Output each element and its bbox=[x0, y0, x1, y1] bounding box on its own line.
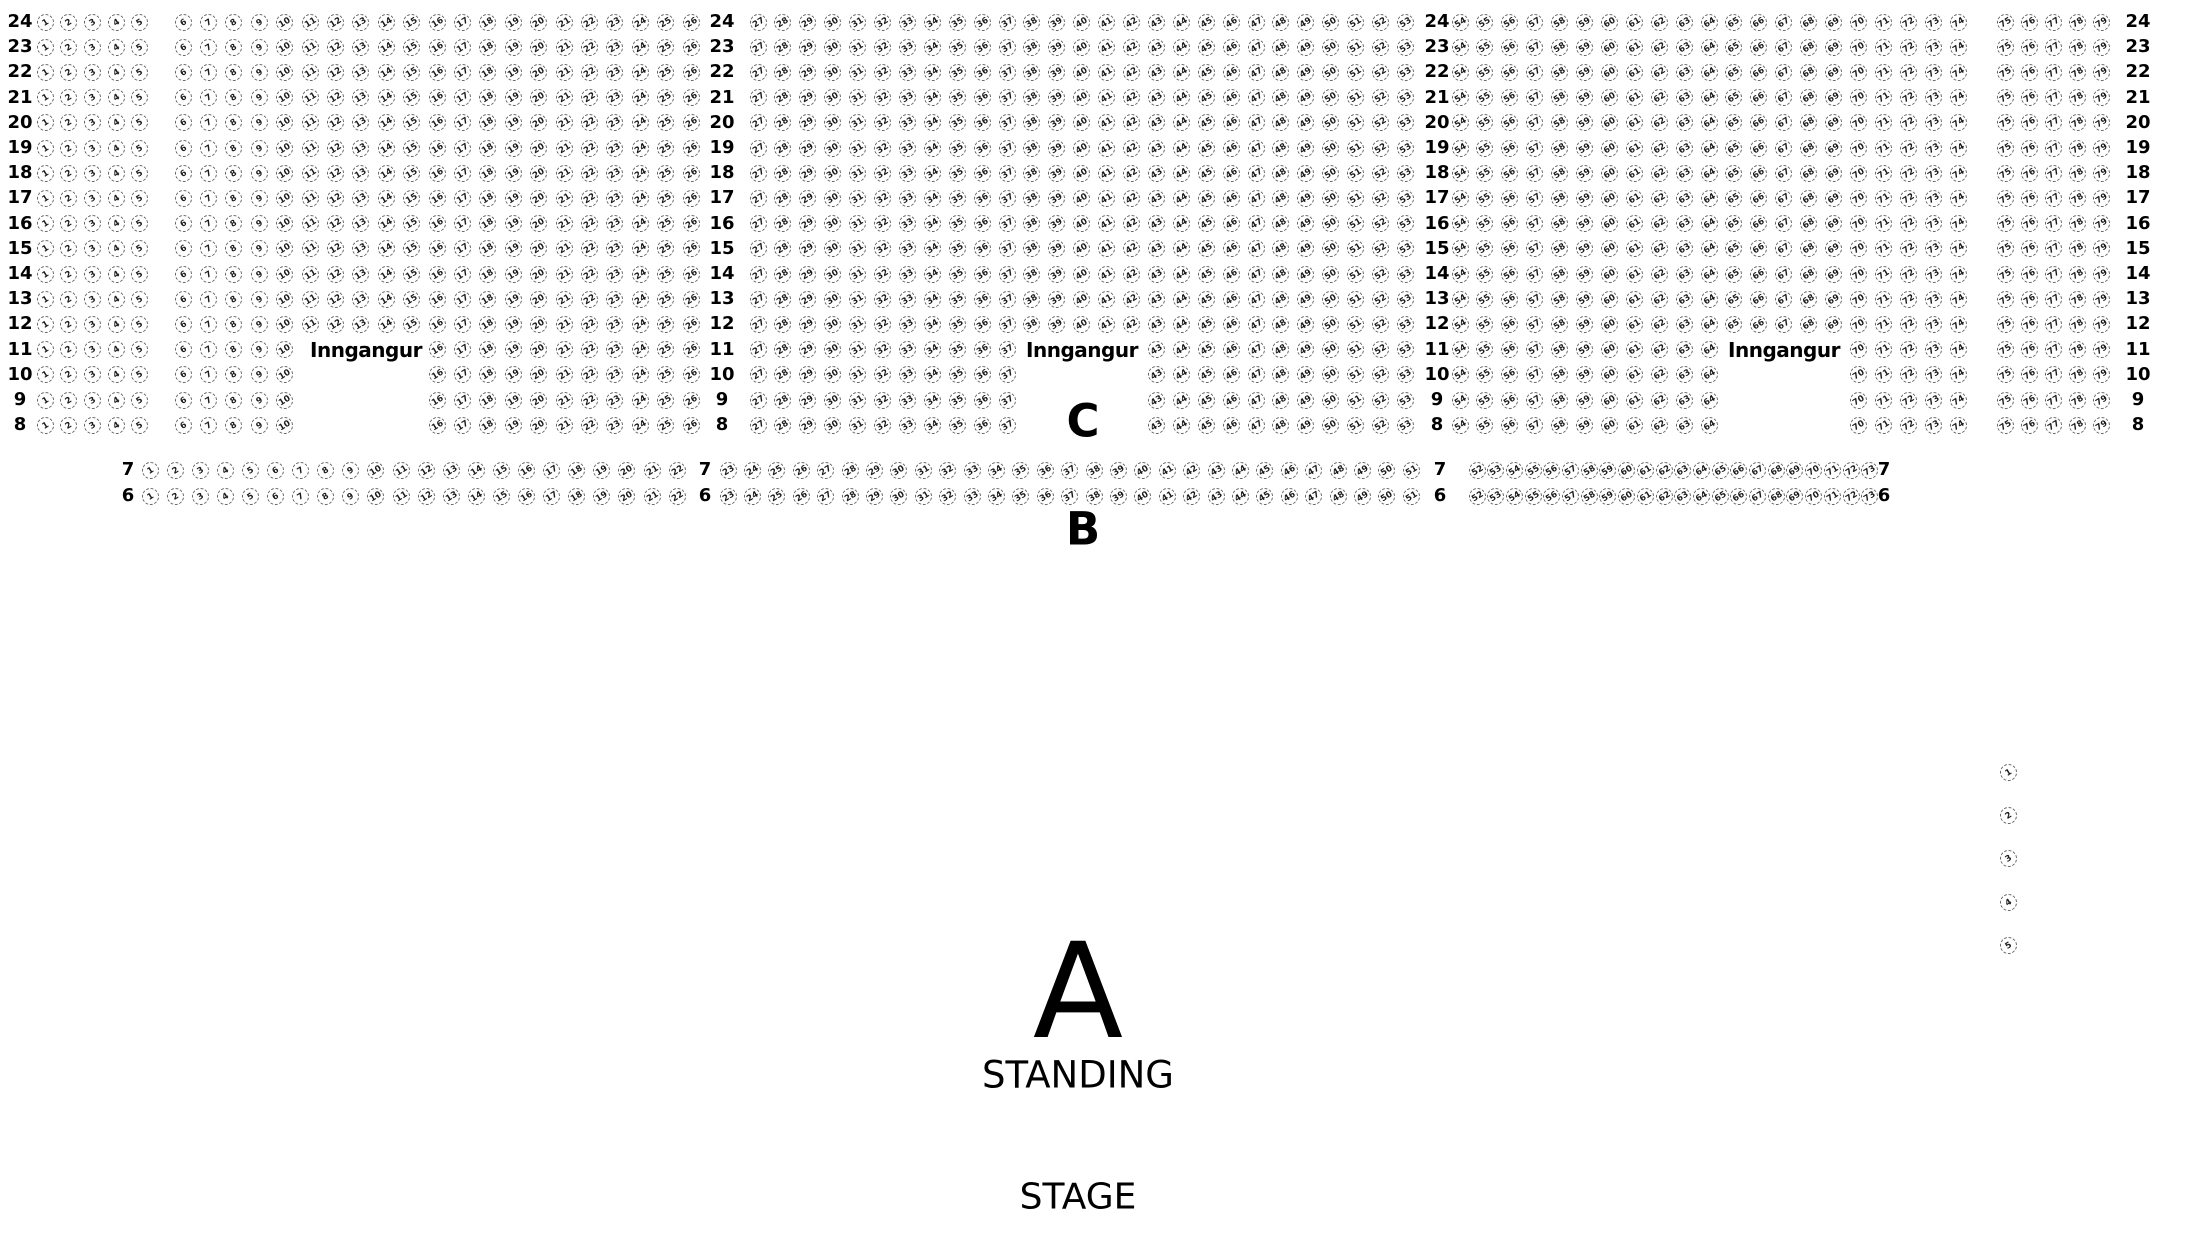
seat[interactable]: 51 bbox=[1344, 111, 1367, 134]
seat[interactable]: 4 bbox=[104, 237, 127, 260]
seat[interactable]: 8 bbox=[222, 10, 245, 33]
seat[interactable]: 47 bbox=[1244, 187, 1267, 210]
seat[interactable]: 34 bbox=[985, 484, 1008, 507]
seat[interactable]: 25 bbox=[654, 262, 677, 285]
seat[interactable]: 75 bbox=[1993, 10, 2016, 33]
seat[interactable]: 20 bbox=[527, 187, 550, 210]
seat[interactable]: 36 bbox=[970, 10, 993, 33]
seat[interactable]: 57 bbox=[1523, 161, 1546, 184]
seat[interactable]: 16 bbox=[425, 262, 448, 285]
seat[interactable]: 2 bbox=[57, 237, 80, 260]
seat[interactable]: 28 bbox=[838, 484, 861, 507]
seat[interactable]: 31 bbox=[846, 313, 869, 336]
seat[interactable]: 71 bbox=[1872, 187, 1895, 210]
seat[interactable]: 64 bbox=[1697, 187, 1720, 210]
seat[interactable]: 59 bbox=[1573, 388, 1596, 411]
seat[interactable]: 18 bbox=[476, 388, 499, 411]
seat[interactable]: 48 bbox=[1269, 262, 1292, 285]
seat[interactable]: 25 bbox=[654, 136, 677, 159]
seat[interactable]: 66 bbox=[1727, 484, 1750, 507]
seat[interactable]: 51 bbox=[1344, 262, 1367, 285]
seat[interactable]: 28 bbox=[771, 338, 794, 361]
seat[interactable]: 71 bbox=[1872, 35, 1895, 58]
seat[interactable]: 47 bbox=[1244, 161, 1267, 184]
seat[interactable]: 43 bbox=[1145, 313, 1168, 336]
seat[interactable]: 33 bbox=[896, 161, 919, 184]
seat[interactable]: 55 bbox=[1473, 413, 1496, 436]
seat[interactable]: 21 bbox=[552, 35, 575, 58]
seat[interactable]: 62 bbox=[1647, 287, 1670, 310]
seat[interactable]: 9 bbox=[247, 10, 270, 33]
seat[interactable]: 45 bbox=[1194, 363, 1217, 386]
seat[interactable]: 75 bbox=[1993, 61, 2016, 84]
seat[interactable]: 52 bbox=[1369, 212, 1392, 235]
seat[interactable]: 70 bbox=[1847, 313, 1870, 336]
seat[interactable]: 49 bbox=[1294, 212, 1317, 235]
seat[interactable]: 5 bbox=[128, 287, 151, 310]
seat[interactable]: 45 bbox=[1194, 262, 1217, 285]
seat[interactable]: 60 bbox=[1598, 287, 1621, 310]
seat[interactable]: 25 bbox=[654, 237, 677, 260]
seat[interactable]: 63 bbox=[1672, 413, 1695, 436]
seat[interactable]: 37 bbox=[995, 363, 1018, 386]
seat[interactable]: 28 bbox=[771, 363, 794, 386]
seat[interactable]: 77 bbox=[2041, 61, 2064, 84]
seat[interactable]: 61 bbox=[1623, 313, 1646, 336]
seat[interactable]: 59 bbox=[1573, 61, 1596, 84]
seat[interactable]: 28 bbox=[771, 237, 794, 260]
seat[interactable]: 17 bbox=[451, 10, 474, 33]
seat[interactable]: 72 bbox=[1896, 237, 1919, 260]
seat[interactable]: 77 bbox=[2041, 237, 2064, 260]
seat[interactable]: 43 bbox=[1204, 484, 1227, 507]
seat[interactable]: 77 bbox=[2041, 262, 2064, 285]
seat[interactable]: 32 bbox=[871, 338, 894, 361]
seat[interactable]: 78 bbox=[2065, 136, 2088, 159]
seat[interactable]: 4 bbox=[104, 187, 127, 210]
seat[interactable]: 32 bbox=[871, 363, 894, 386]
seat[interactable]: 44 bbox=[1170, 61, 1193, 84]
seat[interactable]: 52 bbox=[1369, 161, 1392, 184]
seat[interactable]: 59 bbox=[1573, 262, 1596, 285]
seat[interactable]: 12 bbox=[324, 10, 347, 33]
seat[interactable]: 12 bbox=[324, 287, 347, 310]
seat[interactable]: 32 bbox=[936, 484, 959, 507]
seat[interactable]: 11 bbox=[389, 484, 412, 507]
seat[interactable]: 37 bbox=[995, 287, 1018, 310]
seat[interactable]: 28 bbox=[771, 287, 794, 310]
seat[interactable]: 4 bbox=[104, 363, 127, 386]
seat[interactable]: 74 bbox=[1946, 338, 1969, 361]
seat[interactable]: 64 bbox=[1697, 287, 1720, 310]
seat[interactable]: 47 bbox=[1244, 10, 1267, 33]
seat[interactable]: 46 bbox=[1219, 161, 1242, 184]
seat[interactable]: 18 bbox=[476, 111, 499, 134]
seat[interactable]: 53 bbox=[1394, 262, 1417, 285]
seat[interactable]: 53 bbox=[1394, 287, 1417, 310]
seat[interactable]: 15 bbox=[490, 484, 513, 507]
seat[interactable]: 40 bbox=[1070, 237, 1093, 260]
seat[interactable]: 14 bbox=[374, 313, 397, 336]
seat[interactable]: 51 bbox=[1344, 338, 1367, 361]
seat[interactable]: 32 bbox=[871, 212, 894, 235]
seat[interactable]: 55 bbox=[1473, 262, 1496, 285]
seat[interactable]: 69 bbox=[1822, 61, 1845, 84]
seat[interactable]: 71 bbox=[1872, 136, 1895, 159]
seat[interactable]: 34 bbox=[921, 262, 944, 285]
seat[interactable]: 27 bbox=[746, 161, 769, 184]
seat[interactable]: 38 bbox=[1020, 35, 1043, 58]
seat[interactable]: 34 bbox=[921, 136, 944, 159]
seat[interactable]: 39 bbox=[1045, 187, 1068, 210]
seat[interactable]: 43 bbox=[1145, 35, 1168, 58]
seat[interactable]: 65 bbox=[1722, 86, 1745, 109]
seat[interactable]: 33 bbox=[896, 86, 919, 109]
seat[interactable]: 37 bbox=[995, 413, 1018, 436]
seat[interactable]: 50 bbox=[1319, 61, 1342, 84]
seat[interactable]: 49 bbox=[1294, 10, 1317, 33]
seat[interactable]: 57 bbox=[1523, 212, 1546, 235]
seat[interactable]: 5 bbox=[128, 61, 151, 84]
seat[interactable]: 47 bbox=[1244, 388, 1267, 411]
seat[interactable]: 12 bbox=[324, 212, 347, 235]
seat[interactable]: 36 bbox=[970, 35, 993, 58]
seat[interactable]: 67 bbox=[1772, 86, 1795, 109]
seat[interactable]: 46 bbox=[1219, 35, 1242, 58]
seat[interactable]: 12 bbox=[324, 136, 347, 159]
seat[interactable]: 31 bbox=[846, 161, 869, 184]
seat[interactable]: 21 bbox=[552, 262, 575, 285]
seat[interactable]: 14 bbox=[374, 287, 397, 310]
seat[interactable]: 71 bbox=[1872, 161, 1895, 184]
seat[interactable]: 34 bbox=[921, 338, 944, 361]
seat[interactable]: 17 bbox=[451, 413, 474, 436]
seat[interactable]: 52 bbox=[1465, 458, 1488, 481]
seat[interactable]: 41 bbox=[1095, 136, 1118, 159]
seat[interactable]: 23 bbox=[603, 161, 626, 184]
seat[interactable]: 21 bbox=[552, 413, 575, 436]
seat[interactable]: 43 bbox=[1145, 111, 1168, 134]
seat[interactable]: 52 bbox=[1369, 363, 1392, 386]
seat[interactable]: 46 bbox=[1277, 484, 1300, 507]
seat[interactable]: 49 bbox=[1294, 262, 1317, 285]
seat[interactable]: 5 bbox=[128, 161, 151, 184]
seat[interactable]: 40 bbox=[1070, 111, 1093, 134]
seat[interactable]: 52 bbox=[1369, 338, 1392, 361]
seat[interactable]: 5 bbox=[128, 363, 151, 386]
seat[interactable]: 46 bbox=[1219, 287, 1242, 310]
seat[interactable]: 26 bbox=[679, 35, 702, 58]
seat[interactable]: 8 bbox=[222, 413, 245, 436]
seat[interactable]: 31 bbox=[846, 187, 869, 210]
seat[interactable]: 46 bbox=[1219, 10, 1242, 33]
seat[interactable]: 33 bbox=[896, 237, 919, 260]
seat[interactable]: 9 bbox=[247, 413, 270, 436]
seat[interactable]: 57 bbox=[1523, 61, 1546, 84]
seat[interactable]: 17 bbox=[451, 338, 474, 361]
seat[interactable]: 8 bbox=[222, 262, 245, 285]
seat[interactable]: 76 bbox=[2017, 111, 2040, 134]
seat[interactable]: 62 bbox=[1647, 262, 1670, 285]
seat[interactable]: 3 bbox=[81, 237, 104, 260]
seat[interactable]: 6 bbox=[171, 388, 194, 411]
seat[interactable]: 72 bbox=[1896, 262, 1919, 285]
seat[interactable]: 34 bbox=[921, 212, 944, 235]
seat[interactable]: 39 bbox=[1045, 35, 1068, 58]
seat[interactable]: 54 bbox=[1503, 484, 1526, 507]
seat[interactable]: 10 bbox=[273, 413, 296, 436]
seat[interactable]: 60 bbox=[1598, 86, 1621, 109]
seat[interactable]: 44 bbox=[1170, 187, 1193, 210]
seat[interactable]: 71 bbox=[1872, 212, 1895, 235]
seat[interactable]: 36 bbox=[970, 413, 993, 436]
seat[interactable]: 70 bbox=[1847, 35, 1870, 58]
seat[interactable]: 32 bbox=[871, 287, 894, 310]
seat[interactable]: 79 bbox=[2089, 161, 2112, 184]
seat[interactable]: 60 bbox=[1598, 388, 1621, 411]
seat[interactable]: 24 bbox=[628, 212, 651, 235]
seat[interactable]: 67 bbox=[1772, 212, 1795, 235]
seat[interactable]: 58 bbox=[1548, 287, 1571, 310]
seat[interactable]: 41 bbox=[1095, 262, 1118, 285]
seat[interactable]: 17 bbox=[451, 363, 474, 386]
seat[interactable]: 22 bbox=[578, 388, 601, 411]
seat[interactable]: 25 bbox=[654, 338, 677, 361]
seat[interactable]: 56 bbox=[1498, 161, 1521, 184]
seat[interactable]: 74 bbox=[1946, 413, 1969, 436]
seat[interactable]: 4 bbox=[104, 161, 127, 184]
seat[interactable]: 21 bbox=[552, 313, 575, 336]
seat[interactable]: 36 bbox=[970, 388, 993, 411]
seat[interactable]: 58 bbox=[1548, 86, 1571, 109]
seat[interactable]: 15 bbox=[400, 187, 423, 210]
seat[interactable]: 30 bbox=[821, 187, 844, 210]
seat[interactable]: 66 bbox=[1727, 458, 1750, 481]
seat[interactable]: 13 bbox=[349, 35, 372, 58]
seat[interactable]: 9 bbox=[247, 111, 270, 134]
seat[interactable]: 7 bbox=[197, 111, 220, 134]
seat[interactable]: 3 bbox=[81, 35, 104, 58]
seat[interactable]: 18 bbox=[565, 458, 588, 481]
seat[interactable]: 52 bbox=[1369, 136, 1392, 159]
seat[interactable]: 50 bbox=[1375, 484, 1398, 507]
seat[interactable]: 4 bbox=[1996, 890, 2019, 913]
seat[interactable]: 69 bbox=[1822, 111, 1845, 134]
seat[interactable]: 77 bbox=[2041, 363, 2064, 386]
seat[interactable]: 50 bbox=[1319, 338, 1342, 361]
seat[interactable]: 48 bbox=[1269, 413, 1292, 436]
seat[interactable]: 73 bbox=[1921, 35, 1944, 58]
seat[interactable]: 29 bbox=[796, 111, 819, 134]
seat[interactable]: 47 bbox=[1244, 136, 1267, 159]
seat[interactable]: 56 bbox=[1498, 10, 1521, 33]
seat[interactable]: 32 bbox=[871, 86, 894, 109]
seat[interactable]: 33 bbox=[960, 458, 983, 481]
seat[interactable]: 40 bbox=[1070, 35, 1093, 58]
seat[interactable]: 70 bbox=[1847, 388, 1870, 411]
seat[interactable]: 64 bbox=[1697, 237, 1720, 260]
seat[interactable]: 34 bbox=[985, 458, 1008, 481]
seat[interactable]: 24 bbox=[628, 10, 651, 33]
seat[interactable]: 19 bbox=[501, 363, 524, 386]
seat[interactable]: 26 bbox=[679, 338, 702, 361]
seat[interactable]: 31 bbox=[846, 287, 869, 310]
seat[interactable]: 9 bbox=[339, 458, 362, 481]
seat[interactable]: 35 bbox=[945, 313, 968, 336]
seat[interactable]: 57 bbox=[1523, 313, 1546, 336]
seat[interactable]: 10 bbox=[273, 61, 296, 84]
seat[interactable]: 26 bbox=[679, 136, 702, 159]
seat[interactable]: 32 bbox=[871, 187, 894, 210]
seat[interactable]: 33 bbox=[896, 35, 919, 58]
seat[interactable]: 5 bbox=[128, 338, 151, 361]
seat[interactable]: 10 bbox=[273, 86, 296, 109]
seat[interactable]: 42 bbox=[1120, 313, 1143, 336]
seat[interactable]: 48 bbox=[1269, 10, 1292, 33]
seat[interactable]: 62 bbox=[1647, 161, 1670, 184]
seat[interactable]: 8 bbox=[222, 313, 245, 336]
seat[interactable]: 14 bbox=[374, 35, 397, 58]
seat[interactable]: 2 bbox=[57, 287, 80, 310]
seat[interactable]: 71 bbox=[1872, 10, 1895, 33]
seat[interactable]: 67 bbox=[1772, 187, 1795, 210]
seat[interactable]: 9 bbox=[247, 86, 270, 109]
seat[interactable]: 48 bbox=[1269, 61, 1292, 84]
seat[interactable]: 23 bbox=[603, 35, 626, 58]
seat[interactable]: 15 bbox=[400, 262, 423, 285]
seat[interactable]: 4 bbox=[104, 313, 127, 336]
seat[interactable]: 53 bbox=[1484, 458, 1507, 481]
seat[interactable]: 16 bbox=[425, 10, 448, 33]
seat[interactable]: 69 bbox=[1822, 187, 1845, 210]
seat[interactable]: 52 bbox=[1369, 413, 1392, 436]
seat[interactable]: 29 bbox=[796, 413, 819, 436]
seat[interactable]: 67 bbox=[1746, 484, 1769, 507]
seat[interactable]: 8 bbox=[222, 338, 245, 361]
seat[interactable]: 49 bbox=[1294, 338, 1317, 361]
seat[interactable]: 35 bbox=[945, 111, 968, 134]
seat[interactable]: 50 bbox=[1319, 136, 1342, 159]
seat[interactable]: 77 bbox=[2041, 187, 2064, 210]
seat[interactable]: 79 bbox=[2089, 187, 2112, 210]
seat[interactable]: 14 bbox=[374, 262, 397, 285]
seat[interactable]: 16 bbox=[425, 61, 448, 84]
seat[interactable]: 15 bbox=[400, 111, 423, 134]
seat[interactable]: 79 bbox=[2089, 86, 2112, 109]
seat[interactable]: 52 bbox=[1369, 262, 1392, 285]
seat[interactable]: 21 bbox=[552, 136, 575, 159]
seat[interactable]: 43 bbox=[1145, 10, 1168, 33]
seat[interactable]: 33 bbox=[896, 136, 919, 159]
seat[interactable]: 63 bbox=[1672, 10, 1695, 33]
seat[interactable]: 72 bbox=[1896, 86, 1919, 109]
seat[interactable]: 57 bbox=[1559, 458, 1582, 481]
seat[interactable]: 71 bbox=[1872, 262, 1895, 285]
seat[interactable]: 42 bbox=[1120, 161, 1143, 184]
seat[interactable]: 3 bbox=[81, 10, 104, 33]
seat[interactable]: 61 bbox=[1623, 237, 1646, 260]
seat[interactable]: 45 bbox=[1194, 313, 1217, 336]
seat[interactable]: 3 bbox=[81, 338, 104, 361]
seat[interactable]: 11 bbox=[298, 136, 321, 159]
seat[interactable]: 4 bbox=[104, 61, 127, 84]
seat[interactable]: 33 bbox=[896, 187, 919, 210]
seat[interactable]: 33 bbox=[896, 111, 919, 134]
seat[interactable]: 26 bbox=[679, 363, 702, 386]
seat[interactable]: 65 bbox=[1722, 111, 1745, 134]
seat[interactable]: 64 bbox=[1697, 212, 1720, 235]
seat[interactable]: 35 bbox=[945, 86, 968, 109]
seat[interactable]: 29 bbox=[796, 35, 819, 58]
seat[interactable]: 68 bbox=[1764, 458, 1787, 481]
seat[interactable]: 49 bbox=[1294, 313, 1317, 336]
seat[interactable]: 4 bbox=[214, 458, 237, 481]
seat[interactable]: 73 bbox=[1921, 413, 1944, 436]
seat[interactable]: 24 bbox=[628, 262, 651, 285]
seat[interactable]: 29 bbox=[796, 10, 819, 33]
seat[interactable]: 76 bbox=[2017, 35, 2040, 58]
seat[interactable]: 52 bbox=[1369, 61, 1392, 84]
seat[interactable]: 42 bbox=[1120, 61, 1143, 84]
seat[interactable]: 31 bbox=[846, 212, 869, 235]
seat[interactable]: 46 bbox=[1219, 136, 1242, 159]
seat[interactable]: 71 bbox=[1872, 388, 1895, 411]
seat[interactable]: 71 bbox=[1872, 111, 1895, 134]
seat[interactable]: 17 bbox=[451, 111, 474, 134]
seat[interactable]: 56 bbox=[1498, 287, 1521, 310]
seat[interactable]: 5 bbox=[1996, 934, 2019, 957]
seat[interactable]: 17 bbox=[451, 237, 474, 260]
seat[interactable]: 57 bbox=[1523, 388, 1546, 411]
seat[interactable]: 61 bbox=[1623, 161, 1646, 184]
seat[interactable]: 77 bbox=[2041, 338, 2064, 361]
seat[interactable]: 10 bbox=[273, 287, 296, 310]
seat[interactable]: 49 bbox=[1294, 388, 1317, 411]
seat[interactable]: 24 bbox=[741, 458, 764, 481]
seat[interactable]: 42 bbox=[1180, 458, 1203, 481]
seat[interactable]: 31 bbox=[846, 86, 869, 109]
seat[interactable]: 47 bbox=[1244, 212, 1267, 235]
seat[interactable]: 51 bbox=[1344, 237, 1367, 260]
seat[interactable]: 78 bbox=[2065, 237, 2088, 260]
seat[interactable]: 40 bbox=[1131, 484, 1154, 507]
seat[interactable]: 28 bbox=[771, 187, 794, 210]
seat[interactable]: 76 bbox=[2017, 212, 2040, 235]
seat[interactable]: 46 bbox=[1219, 61, 1242, 84]
seat[interactable]: 65 bbox=[1722, 262, 1745, 285]
seat[interactable]: 9 bbox=[247, 287, 270, 310]
seat[interactable]: 56 bbox=[1498, 187, 1521, 210]
seat[interactable]: 7 bbox=[197, 313, 220, 336]
seat[interactable]: 63 bbox=[1672, 237, 1695, 260]
seat[interactable]: 77 bbox=[2041, 413, 2064, 436]
seat[interactable]: 62 bbox=[1647, 187, 1670, 210]
seat[interactable]: 38 bbox=[1020, 237, 1043, 260]
seat[interactable]: 9 bbox=[247, 187, 270, 210]
seat[interactable]: 15 bbox=[400, 212, 423, 235]
seat[interactable]: 9 bbox=[247, 61, 270, 84]
seat[interactable]: 16 bbox=[425, 287, 448, 310]
seat[interactable]: 38 bbox=[1020, 187, 1043, 210]
seat[interactable]: 75 bbox=[1993, 212, 2016, 235]
seat[interactable]: 70 bbox=[1847, 161, 1870, 184]
seat[interactable]: 38 bbox=[1020, 287, 1043, 310]
seat[interactable]: 26 bbox=[679, 161, 702, 184]
seat[interactable]: 28 bbox=[771, 212, 794, 235]
seat[interactable]: 75 bbox=[1993, 262, 2016, 285]
seat[interactable]: 8 bbox=[222, 86, 245, 109]
seat[interactable]: 16 bbox=[425, 187, 448, 210]
